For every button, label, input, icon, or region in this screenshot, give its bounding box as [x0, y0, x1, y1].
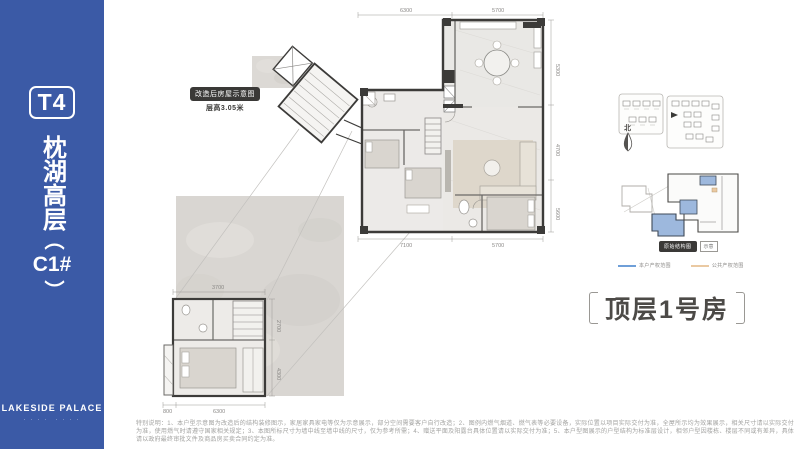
bracket-left	[589, 292, 598, 324]
title-chars: 枕湖高层	[39, 135, 66, 231]
ceiling-height-label: 层高3.05米	[189, 103, 261, 113]
paren-close: ）	[43, 280, 61, 300]
dim-label: 3700	[212, 285, 224, 291]
dim-label: 4700	[554, 144, 560, 156]
tv-cabinet	[445, 150, 451, 192]
brochure-page: 6300 5700 5300 4700 5600 7100 5700	[0, 0, 800, 449]
dim-label: 6300	[213, 409, 225, 415]
brand-name: LAKESIDE PALACE	[0, 403, 104, 413]
compass-icon: 北	[624, 123, 632, 151]
legend-label: 公共产权范围	[712, 262, 744, 269]
legend-swatch-blue	[618, 265, 636, 267]
dim-label: 5700	[492, 243, 504, 249]
dim-label: 2700	[275, 320, 281, 332]
renovation-badge-label: 改造后房屋示意图	[190, 87, 260, 101]
toilet	[459, 200, 469, 214]
legend-label: 本户产权范围	[639, 262, 671, 269]
legend-item-public: 公共产权范围	[691, 262, 744, 269]
dim-label: 6300	[400, 8, 412, 14]
loft-balcony	[164, 345, 173, 395]
key-plan-outline-unit	[622, 186, 652, 212]
sidebar: T4 枕湖高层 （ C1# ） LAKESIDE PALACE · · · · …	[0, 0, 104, 449]
loft-floor-plan	[164, 299, 265, 396]
unit-title: 顶层1号房	[605, 290, 729, 326]
svg-text:北: 北	[624, 123, 631, 132]
coffee-table	[484, 160, 500, 176]
renovation-badge: 改造后房屋示意图 层高3.05米	[189, 83, 261, 113]
legend-swatch-orange	[691, 265, 709, 267]
key-plan-lower-unit	[652, 214, 684, 236]
key-plan-badge: 原始结构图	[659, 241, 697, 252]
vertical-title: 枕湖高层 （ C1# ）	[33, 135, 72, 299]
sink	[469, 219, 477, 227]
sitemap-b	[667, 96, 723, 148]
main-floor-plan	[360, 18, 545, 234]
dim-label: 7100	[400, 243, 412, 249]
disclaimer-text: 特别说明：1、本户型示意图为改造后的结构装修图示，家居家具家电等仅为示意展示，部…	[136, 420, 794, 444]
unit-title-block: 顶层1号房	[584, 290, 750, 326]
kitchen-cabinets	[460, 22, 516, 29]
dim-label: 5700	[492, 8, 504, 14]
paren-open: （	[43, 230, 61, 250]
legend: 本户产权范围 公共产权范围	[618, 262, 788, 269]
key-plan-badge-row: 原始结构图 示意	[659, 241, 718, 252]
staircase	[425, 118, 441, 154]
dim-label: 4300	[275, 368, 281, 380]
key-plan-note: 示意	[700, 241, 718, 252]
dining-table	[484, 50, 510, 76]
loft-staircase	[233, 301, 263, 340]
floorplan-canvas: 6300 5700 5300 4700 5600 7100 5700	[0, 0, 800, 449]
tower-badge: T4	[29, 86, 76, 119]
unit-code: C1#	[33, 253, 72, 277]
bracket-right	[736, 292, 745, 324]
brand-subtitle: · · · · · · · ·	[0, 416, 104, 423]
key-plan	[622, 174, 738, 236]
stair-corridor-link	[336, 120, 362, 144]
brand-block: LAKESIDE PALACE · · · · · · · ·	[0, 403, 104, 423]
dim-label: 5600	[554, 208, 560, 220]
dim-label: 5300	[554, 64, 560, 76]
desk	[407, 205, 429, 213]
dim-label: 800	[163, 409, 172, 415]
legend-item-own: 本户产权范围	[618, 262, 671, 269]
